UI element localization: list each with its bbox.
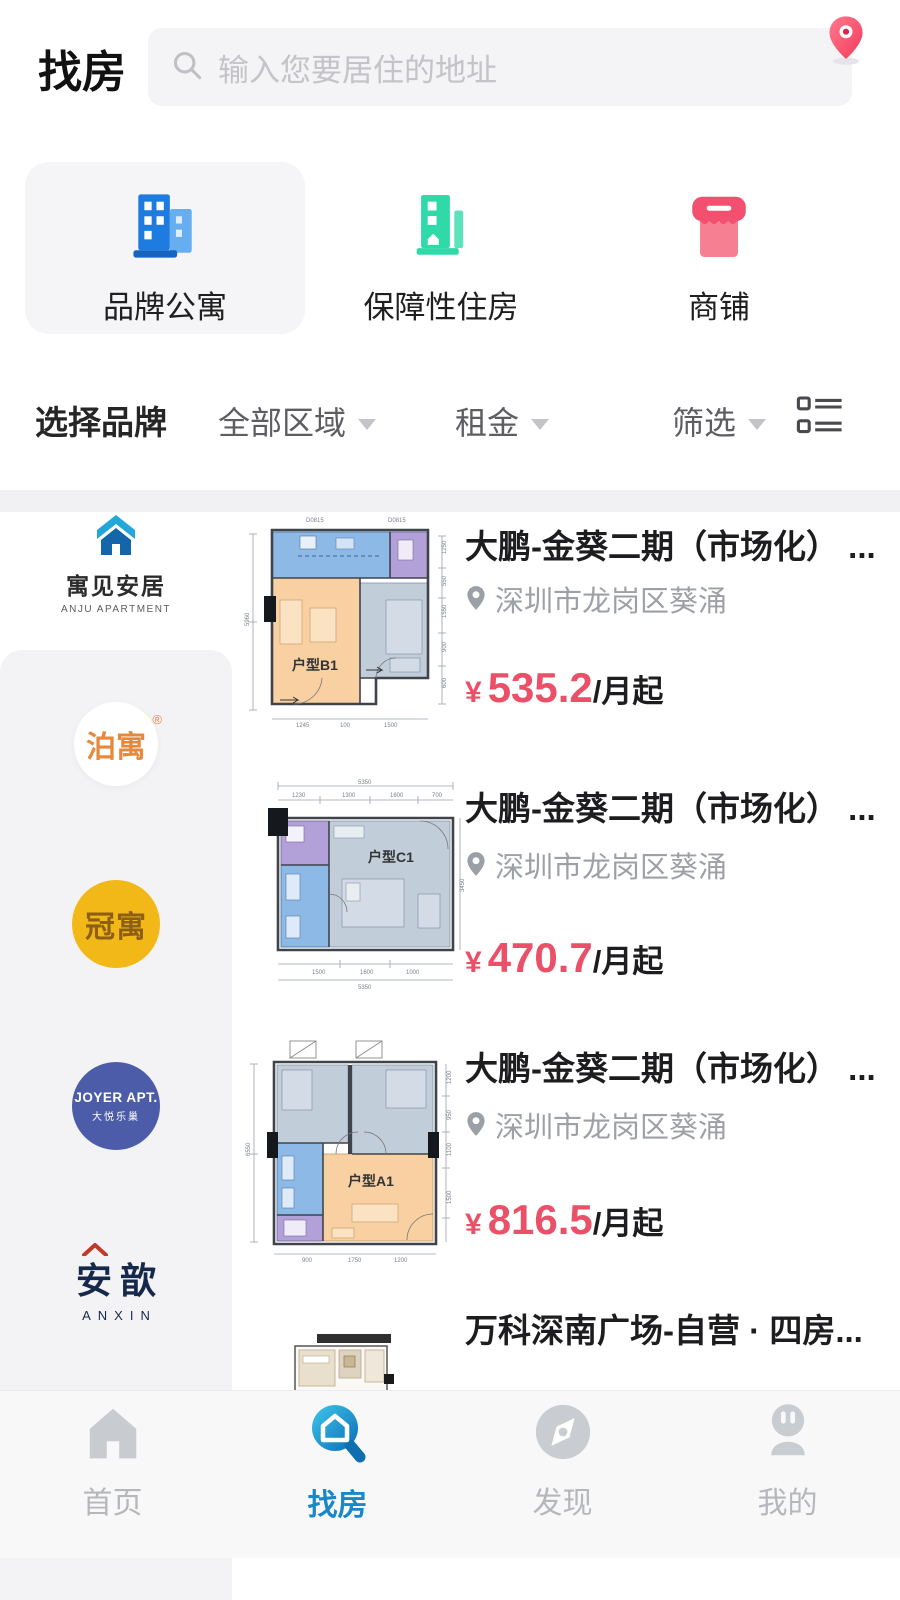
svg-text:5350: 5350 (358, 985, 372, 991)
find-house-icon (305, 1401, 371, 1470)
category-label: 品牌公寓 (103, 282, 227, 327)
svg-text:5350: 5350 (358, 780, 372, 786)
svg-text:1300: 1300 (342, 793, 356, 799)
filter-more[interactable]: 筛选 (672, 398, 766, 444)
apartment-buildings-icon (131, 184, 199, 264)
brand-subname: 大悦乐巢 (92, 1108, 140, 1123)
tab-label: 发现 (533, 1478, 593, 1522)
search-placeholder: 输入您要居住的地址 (218, 45, 852, 90)
location-pin-button[interactable] (822, 14, 870, 66)
tab-label: 首页 (83, 1478, 143, 1522)
svg-text:1550: 1550 (442, 604, 448, 618)
listing-location: 深圳市龙岗区葵涌 (465, 1104, 727, 1146)
listing-row[interactable]: 5960 D0815 D0815 1250 550 1550 900 600 1… (232, 512, 900, 770)
affordable-housing-icon (410, 184, 472, 264)
location-pin-icon (822, 14, 870, 66)
floorplan-image-b1: 5960 D0815 D0815 1250 550 1550 900 600 1… (240, 512, 452, 735)
svg-text:550: 550 (442, 575, 448, 586)
tab-find-house[interactable]: 找房 (225, 1391, 450, 1558)
page-title: 找房 (38, 36, 126, 100)
svg-text:1200: 1200 (447, 1070, 453, 1084)
compass-icon (532, 1401, 594, 1468)
listing-row[interactable]: 5350 1230 1300 1600 700 1500 1600 1000 5… (232, 770, 900, 1028)
svg-text:1750: 1750 (348, 1258, 362, 1264)
listing-price: ¥ 470.7 /月起 (465, 934, 663, 982)
chevron-down-icon (748, 419, 766, 430)
price-value: 816.5 (488, 1196, 593, 1244)
location-pin-icon (465, 1111, 487, 1139)
svg-text:1100: 1100 (447, 1142, 453, 1156)
svg-text:D0815: D0815 (388, 518, 406, 524)
sidebar-item-boyu[interactable]: 泊寓® (0, 702, 232, 786)
svg-text:6550: 6550 (246, 1142, 252, 1156)
listing-price: ¥ 816.5 /月起 (465, 1196, 663, 1244)
sidebar-item-joyer[interactable]: JOYER APT. 大悦乐巢 (0, 1062, 232, 1150)
anju-house-logo-icon (90, 512, 142, 563)
currency-symbol: ¥ (465, 676, 482, 710)
brand-name: 冠寓 (85, 902, 147, 946)
svg-text:1500: 1500 (384, 723, 398, 729)
svg-text:900: 900 (302, 1258, 313, 1264)
section-divider (0, 490, 900, 512)
listing-location: 深圳市龙岗区葵涌 (465, 844, 727, 886)
brand-subname: ANXIN (82, 1308, 157, 1323)
filter-rent[interactable]: 租金 (455, 398, 549, 444)
svg-text:900: 900 (442, 641, 448, 652)
location-pin-icon (465, 585, 487, 613)
svg-text:1245: 1245 (296, 723, 310, 729)
svg-text:100: 100 (340, 723, 351, 729)
svg-text:950: 950 (447, 1109, 453, 1120)
listing-location-text: 深圳市龙岗区葵涌 (495, 1104, 727, 1146)
svg-text:户型B1: 户型B1 (292, 657, 338, 673)
svg-text:1200: 1200 (394, 1258, 408, 1264)
anxin-roof-icon (82, 1243, 108, 1261)
listing-location-text: 深圳市龙岗区葵涌 (495, 844, 727, 886)
brand-name: JOYER APT. (74, 1090, 157, 1105)
currency-symbol: ¥ (465, 1208, 482, 1242)
category-affordable-housing[interactable]: 保障性住房 (326, 162, 556, 334)
location-pin-icon (465, 851, 487, 879)
svg-text:1000: 1000 (406, 970, 420, 976)
category-shop[interactable]: 商铺 (596, 162, 842, 334)
search-input[interactable]: 输入您要居住的地址 (148, 28, 852, 106)
tab-label: 找房 (308, 1480, 368, 1524)
chevron-down-icon (358, 419, 376, 430)
filter-bar: 选择品牌 全部区域 租金 筛选 (0, 392, 900, 448)
svg-text:1250: 1250 (442, 540, 448, 554)
list-view-toggle[interactable] (796, 394, 844, 438)
svg-text:户型A1: 户型A1 (348, 1173, 394, 1189)
listing-location-text: 深圳市龙岗区葵涌 (495, 578, 727, 620)
filter-region[interactable]: 全部区域 (218, 398, 376, 444)
listing-price: ¥ 535.2 /月起 (465, 664, 663, 712)
filter-region-label: 全部区域 (218, 398, 346, 444)
tab-home[interactable]: 首页 (0, 1391, 225, 1558)
tab-label: 我的 (758, 1478, 818, 1522)
category-brand-apartment[interactable]: 品牌公寓 (25, 162, 305, 334)
price-value: 470.7 (488, 934, 593, 982)
chevron-down-icon (531, 419, 549, 430)
shop-storefront-icon (690, 184, 748, 264)
brand-subname: ANJU APARTMENT (61, 604, 171, 615)
brand-name: 泊寓® (86, 722, 146, 766)
svg-text:1600: 1600 (360, 970, 374, 976)
price-value: 535.2 (488, 664, 593, 712)
svg-text:5960: 5960 (245, 612, 251, 626)
listing-row[interactable]: 6550 1200 950 1100 1500 900 1750 1200 (232, 1030, 900, 1288)
svg-text:700: 700 (432, 793, 443, 799)
registered-mark: ® (152, 712, 162, 727)
floorplan-image-a1: 6550 1200 950 1100 1500 900 1750 1200 (240, 1036, 455, 1269)
svg-text:户型C1: 户型C1 (368, 849, 414, 865)
listing-title: 大鹏-金葵二期（市场化） ... (465, 520, 876, 568)
listing-title: 大鹏-金葵二期（市场化） ... (465, 1042, 876, 1090)
list-icon (796, 394, 844, 438)
price-unit: /月起 (593, 936, 664, 981)
brand-name: 寓见安居 (66, 567, 166, 601)
category-label: 商铺 (688, 282, 750, 327)
svg-text:1500: 1500 (312, 970, 326, 976)
tab-mine[interactable]: 我的 (675, 1391, 900, 1558)
listing-location: 深圳市龙岗区葵涌 (465, 578, 727, 620)
svg-text:1600: 1600 (390, 793, 404, 799)
floorplan-image-c1: 5350 1230 1300 1600 700 1500 1600 1000 5… (250, 774, 465, 997)
svg-text:1500: 1500 (447, 1190, 453, 1204)
svg-text:1230: 1230 (292, 793, 306, 799)
currency-symbol: ¥ (465, 946, 482, 980)
home-icon (82, 1401, 144, 1468)
search-icon (172, 50, 202, 85)
category-label: 保障性住房 (364, 282, 519, 327)
svg-text:D0815: D0815 (306, 518, 324, 524)
sidebar-item-anju[interactable]: 寓见安居 ANJU APARTMENT (0, 512, 232, 650)
sidebar-item-anxin[interactable]: 安歆 ANXIN (0, 1252, 232, 1323)
listing-title: 万科深南广场-自营 · 四房... (465, 1304, 863, 1352)
price-unit: /月起 (593, 1198, 664, 1243)
price-unit: /月起 (593, 666, 664, 711)
listing-title: 大鹏-金葵二期（市场化） ... (465, 782, 876, 830)
sidebar-item-guanyu[interactable]: 冠寓 (0, 880, 232, 968)
filter-more-label: 筛选 (672, 398, 736, 444)
bottom-tab-bar: 首页 找房 发现 (0, 1390, 900, 1558)
person-icon (757, 1401, 819, 1468)
select-brand-label[interactable]: 选择品牌 (35, 396, 167, 444)
tab-discover[interactable]: 发现 (450, 1391, 675, 1558)
svg-text:600: 600 (442, 677, 448, 688)
filter-rent-label: 租金 (455, 398, 519, 444)
